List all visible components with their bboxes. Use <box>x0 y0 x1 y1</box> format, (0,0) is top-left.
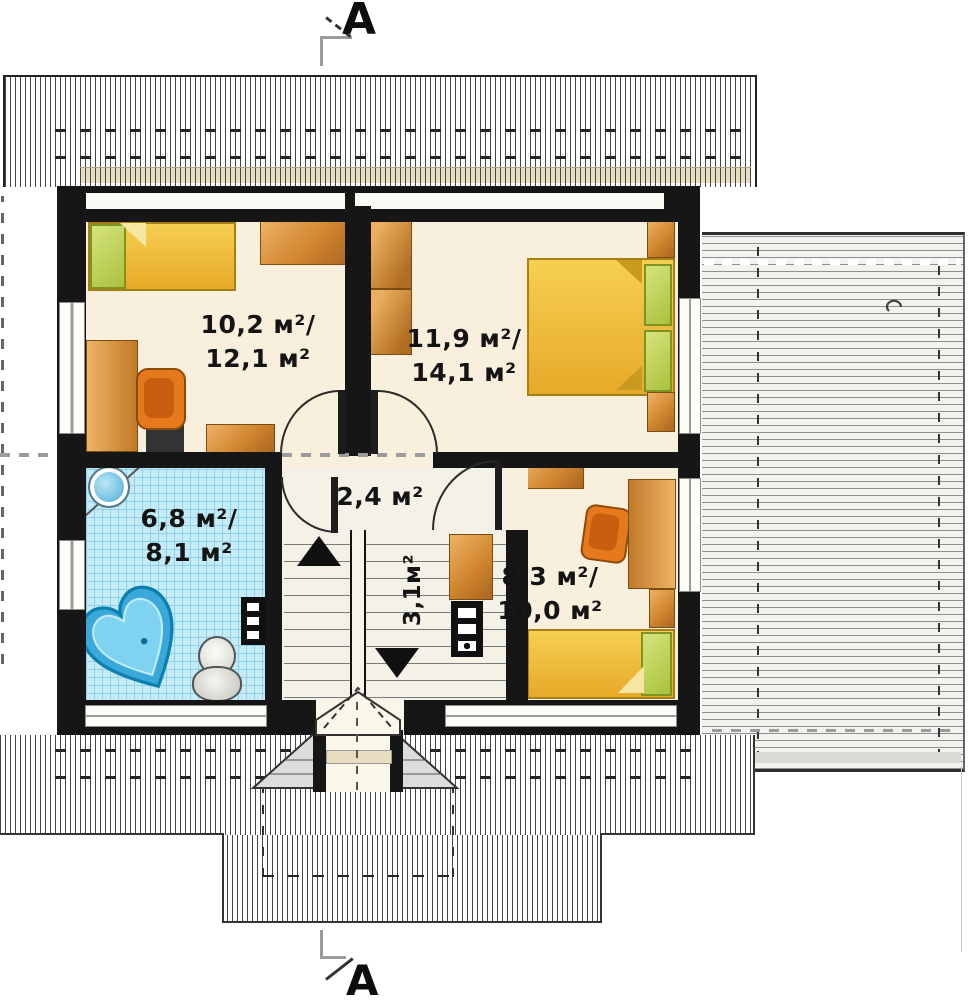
roof-edge <box>222 833 224 923</box>
roof-edge <box>0 833 224 835</box>
area-line: 12,1 м² <box>158 342 358 376</box>
heart-bathtub <box>80 578 188 704</box>
doorway-gap <box>506 468 528 530</box>
floor-plan: 10,2 м²/ 12,1 м² 11,9 м²/ 14,1 м² 6,8 м²… <box>0 0 973 1000</box>
radiator-cell <box>247 603 259 611</box>
section-line <box>320 956 346 959</box>
radiator-cell <box>458 624 476 634</box>
wall-bathroom-stairs <box>265 452 282 712</box>
window <box>679 478 701 592</box>
dormer-window <box>326 750 392 764</box>
door-leaf <box>495 460 502 530</box>
porch-dashed-outline <box>263 875 453 877</box>
wardrobe <box>260 218 354 265</box>
door-leaf <box>338 390 345 454</box>
bed-pillow <box>644 264 672 326</box>
porch-dashed-outline <box>262 789 264 877</box>
wardrobe <box>365 218 412 289</box>
terrace-bottom-dashes <box>712 729 952 732</box>
window <box>85 705 267 727</box>
toilet-base <box>192 666 242 702</box>
window <box>679 298 701 434</box>
dormer-gable-outline <box>304 680 416 738</box>
section-line <box>320 930 323 958</box>
area-line: 11,9 м²/ <box>388 322 540 356</box>
bed-pillow <box>90 224 126 289</box>
porch-dashed-outline <box>452 789 454 877</box>
nightstand <box>647 218 675 258</box>
window <box>445 705 677 727</box>
bed-pillow <box>641 632 672 696</box>
section-marker-bottom: A <box>346 956 379 1000</box>
terrace-white-dashes <box>704 259 961 265</box>
room-area-label: 10,2 м²/ 12,1 м² <box>158 308 358 376</box>
radiator-cell <box>247 617 259 625</box>
room-area-label: 6,8 м²/ 8,1 м² <box>113 502 265 570</box>
stairs-rail <box>350 530 366 696</box>
eave-dashed-line <box>1 196 4 664</box>
terrace-faint-edge <box>961 766 962 952</box>
office-chair-seat <box>144 378 174 418</box>
area-line: 14,1 м² <box>388 356 540 390</box>
window <box>59 302 85 434</box>
window <box>59 540 85 610</box>
roof-edge <box>753 735 755 835</box>
desk <box>628 479 676 589</box>
dormer-centerline <box>356 694 358 790</box>
room-area-label: 11,9 м²/ 14,1 м² <box>388 322 540 390</box>
roof-top-eave-strip <box>80 167 751 183</box>
area-line: 8,3 м²/ <box>494 560 606 594</box>
area-line: 10,0 м² <box>494 594 606 628</box>
terrace-decking <box>702 232 965 772</box>
room-area-label: 8,3 м²/ 10,0 м² <box>494 560 606 628</box>
knee-wall-dashed-line <box>0 453 57 457</box>
roof-edge <box>222 921 602 923</box>
office-chair-seat <box>588 512 621 552</box>
room-area-label: 2,4 м² <box>328 480 432 514</box>
radiator-cell <box>458 608 476 618</box>
roof-bottom-porch-hatch <box>222 835 602 923</box>
cabinet <box>449 534 493 600</box>
radiator <box>241 597 265 645</box>
shelf <box>206 424 275 454</box>
cabinet <box>649 589 675 628</box>
area-line: 10,2 м²/ <box>158 308 358 342</box>
section-line <box>320 36 323 66</box>
roof-edge <box>600 835 602 923</box>
radiator-fan-cell <box>458 641 476 651</box>
bed-pillow <box>644 330 672 392</box>
stairs-area-label: 3,1м² <box>399 545 427 635</box>
area-line: 8,1 м² <box>113 536 265 570</box>
desk <box>86 340 138 452</box>
terrace-joint-dashed-line <box>938 262 940 758</box>
terrace-curl-mark <box>886 298 908 316</box>
radiator <box>451 601 483 657</box>
radiator-cell <box>247 631 259 639</box>
nightstand <box>647 392 675 432</box>
terrace-joint-dashed-line <box>757 242 759 760</box>
wall-bathroom-top <box>57 452 282 468</box>
roof-edge <box>600 833 755 835</box>
roof-top-dashed-line <box>55 129 750 132</box>
section-marker-top: A <box>342 0 376 45</box>
area-line: 6,8 м²/ <box>113 502 265 536</box>
dormer-wall <box>313 730 326 792</box>
door-leaf <box>371 390 378 454</box>
roof-top-dashed-line <box>55 156 750 159</box>
